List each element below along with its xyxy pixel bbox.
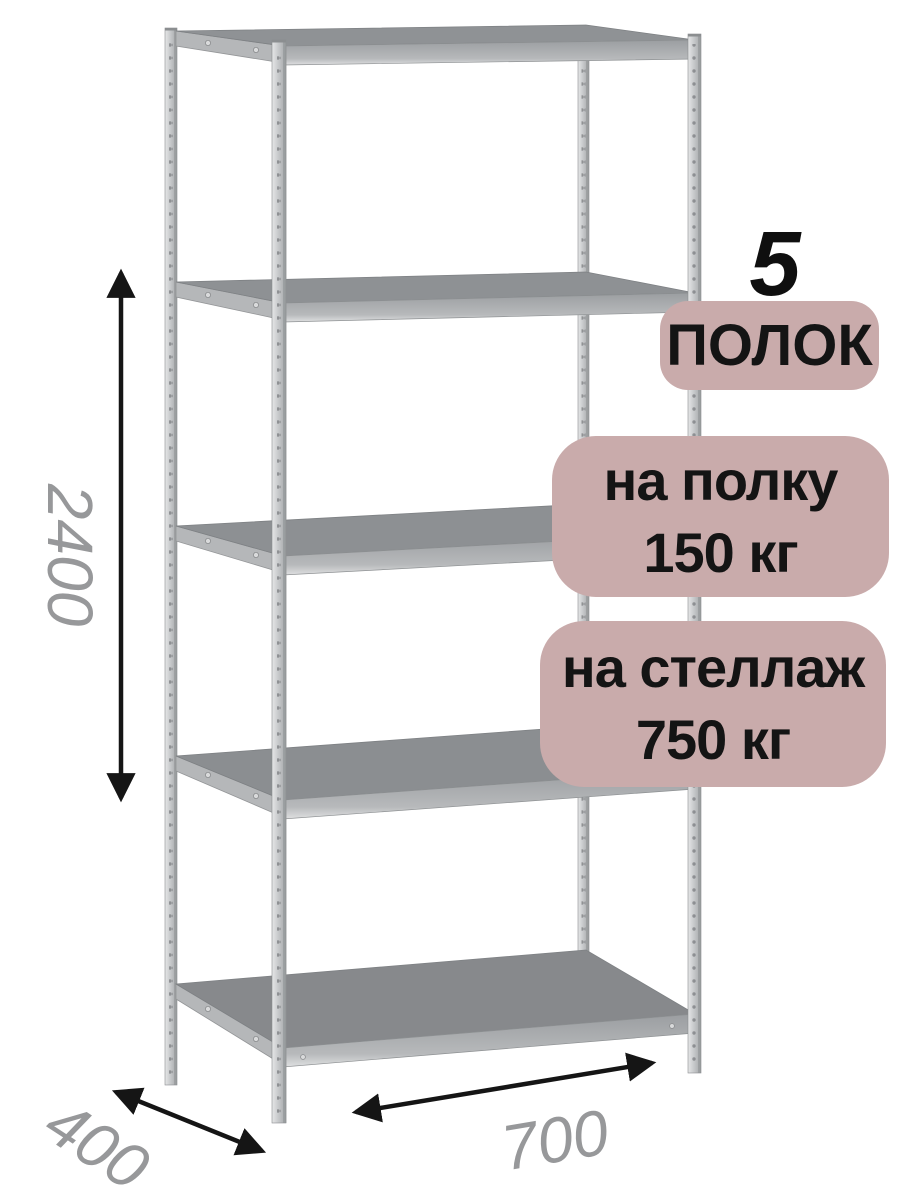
shelf-level-5 [176,25,695,65]
shelf-level-1 [176,950,695,1067]
product-image: 5 ПОЛОК на полку 150 кг на стеллаж 750 к… [0,0,900,1200]
rack-post-back-left [165,28,177,1085]
per-shelf-load-line1: на полку [604,445,838,517]
rack-post-front-left [272,40,287,1123]
per-rack-load-badge: на стеллаж 750 кг [540,621,886,787]
shelf-count-badge: ПОЛОК [660,301,879,390]
height-dimension-label: 2400 [30,430,110,680]
shelf-count-label: ПОЛОК [666,312,873,379]
shelf-level-4 [176,272,695,322]
shelving-rack-illustration [0,0,900,1200]
per-rack-load-line2: 750 кг [636,704,790,776]
shelf-count-number: 5 [700,222,850,306]
per-shelf-load-badge: на полку 150 кг [552,436,889,597]
per-shelf-load-line2: 150 кг [643,517,797,589]
per-rack-load-line1: на стеллаж [562,632,864,704]
